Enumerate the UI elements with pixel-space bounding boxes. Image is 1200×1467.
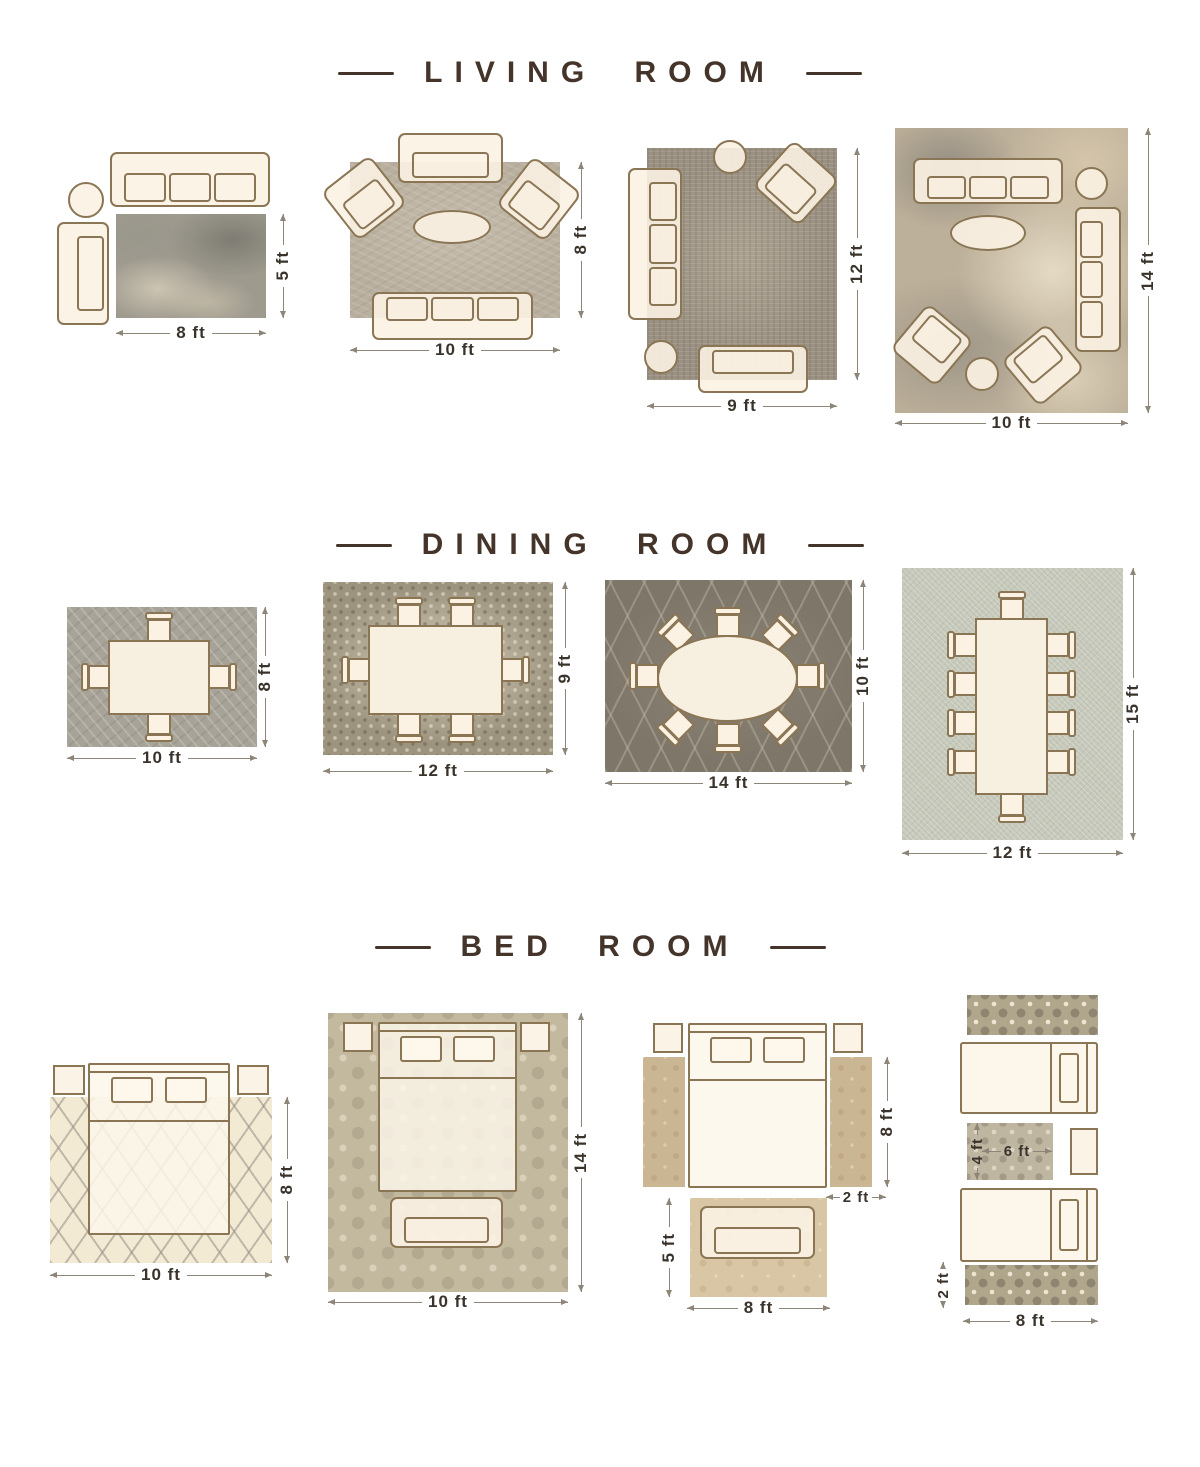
nightstand (1070, 1128, 1098, 1175)
dimension-line (943, 1262, 944, 1269)
bed-divider (1050, 1044, 1052, 1112)
twin-bed (960, 1188, 1098, 1262)
dimension-line (1051, 1321, 1098, 1322)
rug-size-guide: LIVING ROOM 5 ft 8 ft 8 ft 10 ft 12 ft 9… (0, 0, 1200, 1467)
dimension-line (963, 1321, 1010, 1322)
dimension-label: 6 ft (1004, 1143, 1031, 1160)
bed-divider (1086, 1044, 1088, 1112)
twin-bed (960, 1042, 1098, 1114)
runner-rug (965, 1265, 1098, 1305)
dimension-line (982, 1151, 1001, 1152)
runner-rug (967, 995, 1098, 1035)
dimension-label: 8 ft (1016, 1311, 1046, 1331)
dimension-line (977, 1123, 978, 1135)
pillow (1059, 1199, 1079, 1251)
dimension-line (943, 1301, 944, 1308)
bed-divider (1086, 1190, 1088, 1260)
runner-height-dimension: 2 ft (932, 1262, 954, 1308)
dimension-label: 2 ft (935, 1272, 952, 1299)
bed-room-layout-4: 4 ft 6 ft 2 ft 8 ft (0, 0, 1200, 1467)
accent-width-dimension: 6 ft (982, 1140, 1052, 1162)
pillow (1059, 1053, 1079, 1103)
dimension-line (1033, 1151, 1052, 1152)
bed-divider (1050, 1190, 1052, 1260)
runner-length-dimension: 8 ft (963, 1310, 1098, 1332)
dimension-line (977, 1168, 978, 1180)
